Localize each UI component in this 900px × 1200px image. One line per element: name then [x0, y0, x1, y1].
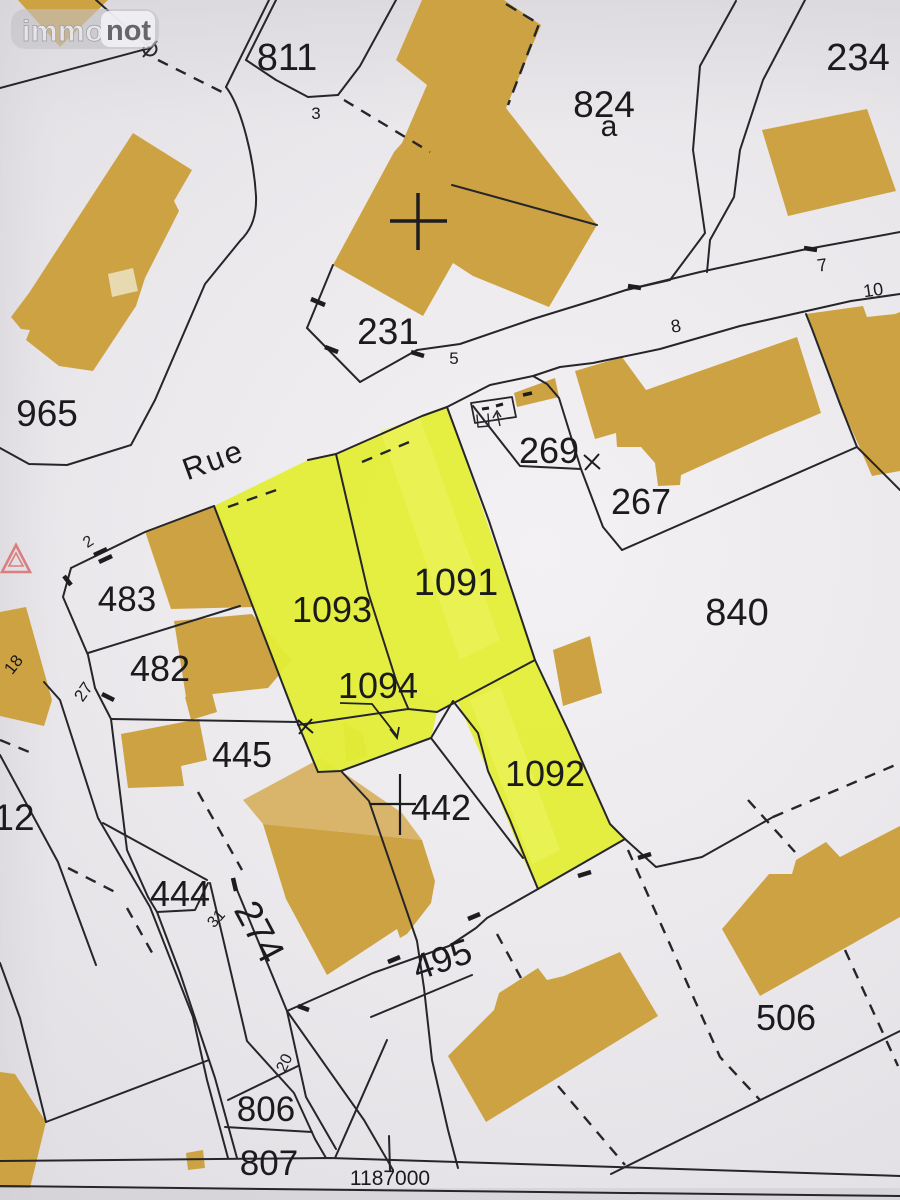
svg-text:10: 10 [862, 279, 885, 302]
svg-text:2: 2 [80, 533, 97, 552]
svg-text:7: 7 [816, 254, 829, 275]
svg-text:807: 807 [240, 1144, 298, 1183]
svg-text:Rue: Rue [178, 433, 249, 487]
svg-text:267: 267 [611, 481, 671, 522]
svg-text:269: 269 [519, 430, 579, 471]
svg-text:8: 8 [669, 315, 682, 336]
svg-text:231: 231 [357, 311, 419, 352]
svg-text:840: 840 [705, 592, 768, 634]
svg-text:27: 27 [70, 679, 96, 705]
svg-text:a: a [601, 110, 618, 143]
svg-text:3: 3 [311, 104, 320, 123]
svg-text:274: 274 [225, 894, 292, 970]
svg-text:1187000: 1187000 [350, 1167, 430, 1190]
svg-text:444: 444 [150, 873, 210, 914]
svg-text:445: 445 [212, 734, 272, 775]
svg-text:483: 483 [98, 580, 156, 619]
svg-text:20: 20 [273, 1051, 296, 1074]
svg-text:482: 482 [130, 648, 190, 689]
svg-text:12: 12 [0, 797, 35, 838]
svg-text:506: 506 [756, 997, 816, 1038]
svg-text:5: 5 [449, 349, 458, 368]
svg-text:1094: 1094 [338, 665, 418, 706]
svg-text:1092: 1092 [505, 753, 585, 794]
svg-text:immo: immo [22, 15, 104, 48]
svg-text:not: not [106, 15, 151, 47]
svg-text:1091: 1091 [414, 562, 499, 604]
svg-text:965: 965 [16, 393, 78, 434]
svg-text:234: 234 [826, 37, 889, 79]
svg-text:442: 442 [411, 787, 471, 828]
svg-text:495: 495 [407, 930, 477, 988]
svg-text:806: 806 [237, 1090, 295, 1129]
svg-text:1093: 1093 [292, 589, 372, 630]
svg-text:811: 811 [257, 37, 318, 79]
